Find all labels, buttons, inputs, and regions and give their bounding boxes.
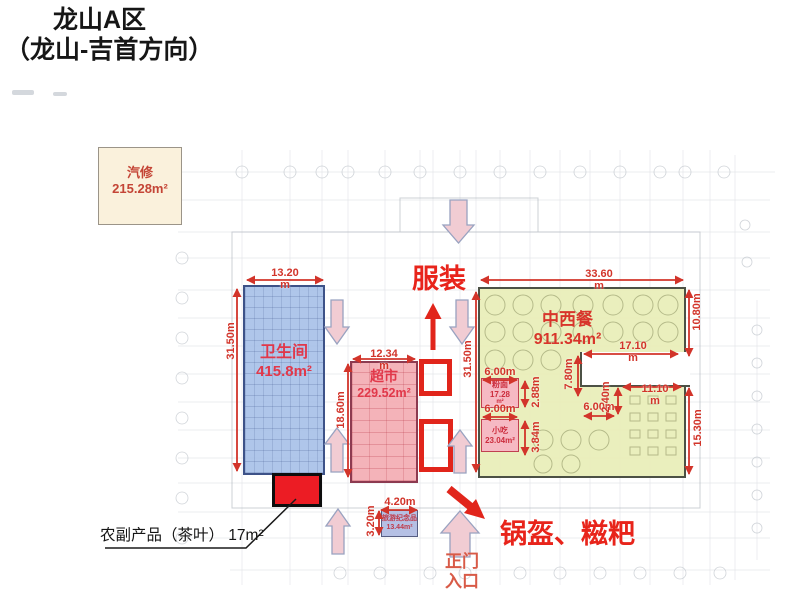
- dimension-label: 12.34m: [370, 348, 398, 372]
- flow-arrow-down-icon: [443, 200, 474, 243]
- snack-pointer-arrow-icon: [449, 489, 471, 507]
- dimension-label: 4.20m: [384, 496, 415, 508]
- main-entrance-label: 正门 入口: [442, 552, 482, 591]
- floor-plan-page: 龙山A区 （龙山-吉首方向） 汽修 215.28m² 卫生间 415.8m² 超…: [0, 0, 792, 593]
- dimension-label: 17.10m: [619, 340, 647, 364]
- dimension-label: 3.84m: [530, 421, 542, 452]
- dimension-label: 3.20m: [365, 505, 377, 536]
- dimension-label: 31.50m: [462, 340, 474, 377]
- flow-arrow-down-icon: [450, 300, 474, 344]
- dimension-label: 6.00m: [484, 366, 515, 378]
- flow-arrow-up-icon: [448, 430, 472, 473]
- dimension-label: 2.40m: [600, 381, 612, 412]
- farm-products-label: 农副产品（茶叶） 17m²: [100, 523, 264, 545]
- dimension-label: 15.30m: [692, 409, 704, 446]
- main-entrance-arrow-icon: [441, 511, 479, 557]
- dimension-label: 13.20m: [271, 267, 299, 291]
- dimension-label: 33.60m: [585, 268, 613, 292]
- dimension-label: 31.50m: [225, 322, 237, 359]
- flow-arrow-down-icon: [325, 300, 349, 344]
- dimension-label: 6.00m: [484, 403, 515, 415]
- clothing-annotation: 服装: [412, 257, 466, 296]
- dimension-label: 10.80m: [691, 293, 703, 330]
- dimension-label: 11.10m: [642, 383, 669, 407]
- dimension-label: 18.60m: [335, 391, 347, 428]
- clothing-pointer-arrow-icon: [431, 316, 436, 350]
- dimension-label: 2.88m: [530, 376, 542, 407]
- flow-arrow-up-icon: [326, 509, 350, 554]
- flow-arrow-up-icon: [325, 428, 349, 472]
- dimension-label: 7.80m: [563, 358, 575, 389]
- snack-annotation: 锅盔、糍粑: [500, 512, 635, 551]
